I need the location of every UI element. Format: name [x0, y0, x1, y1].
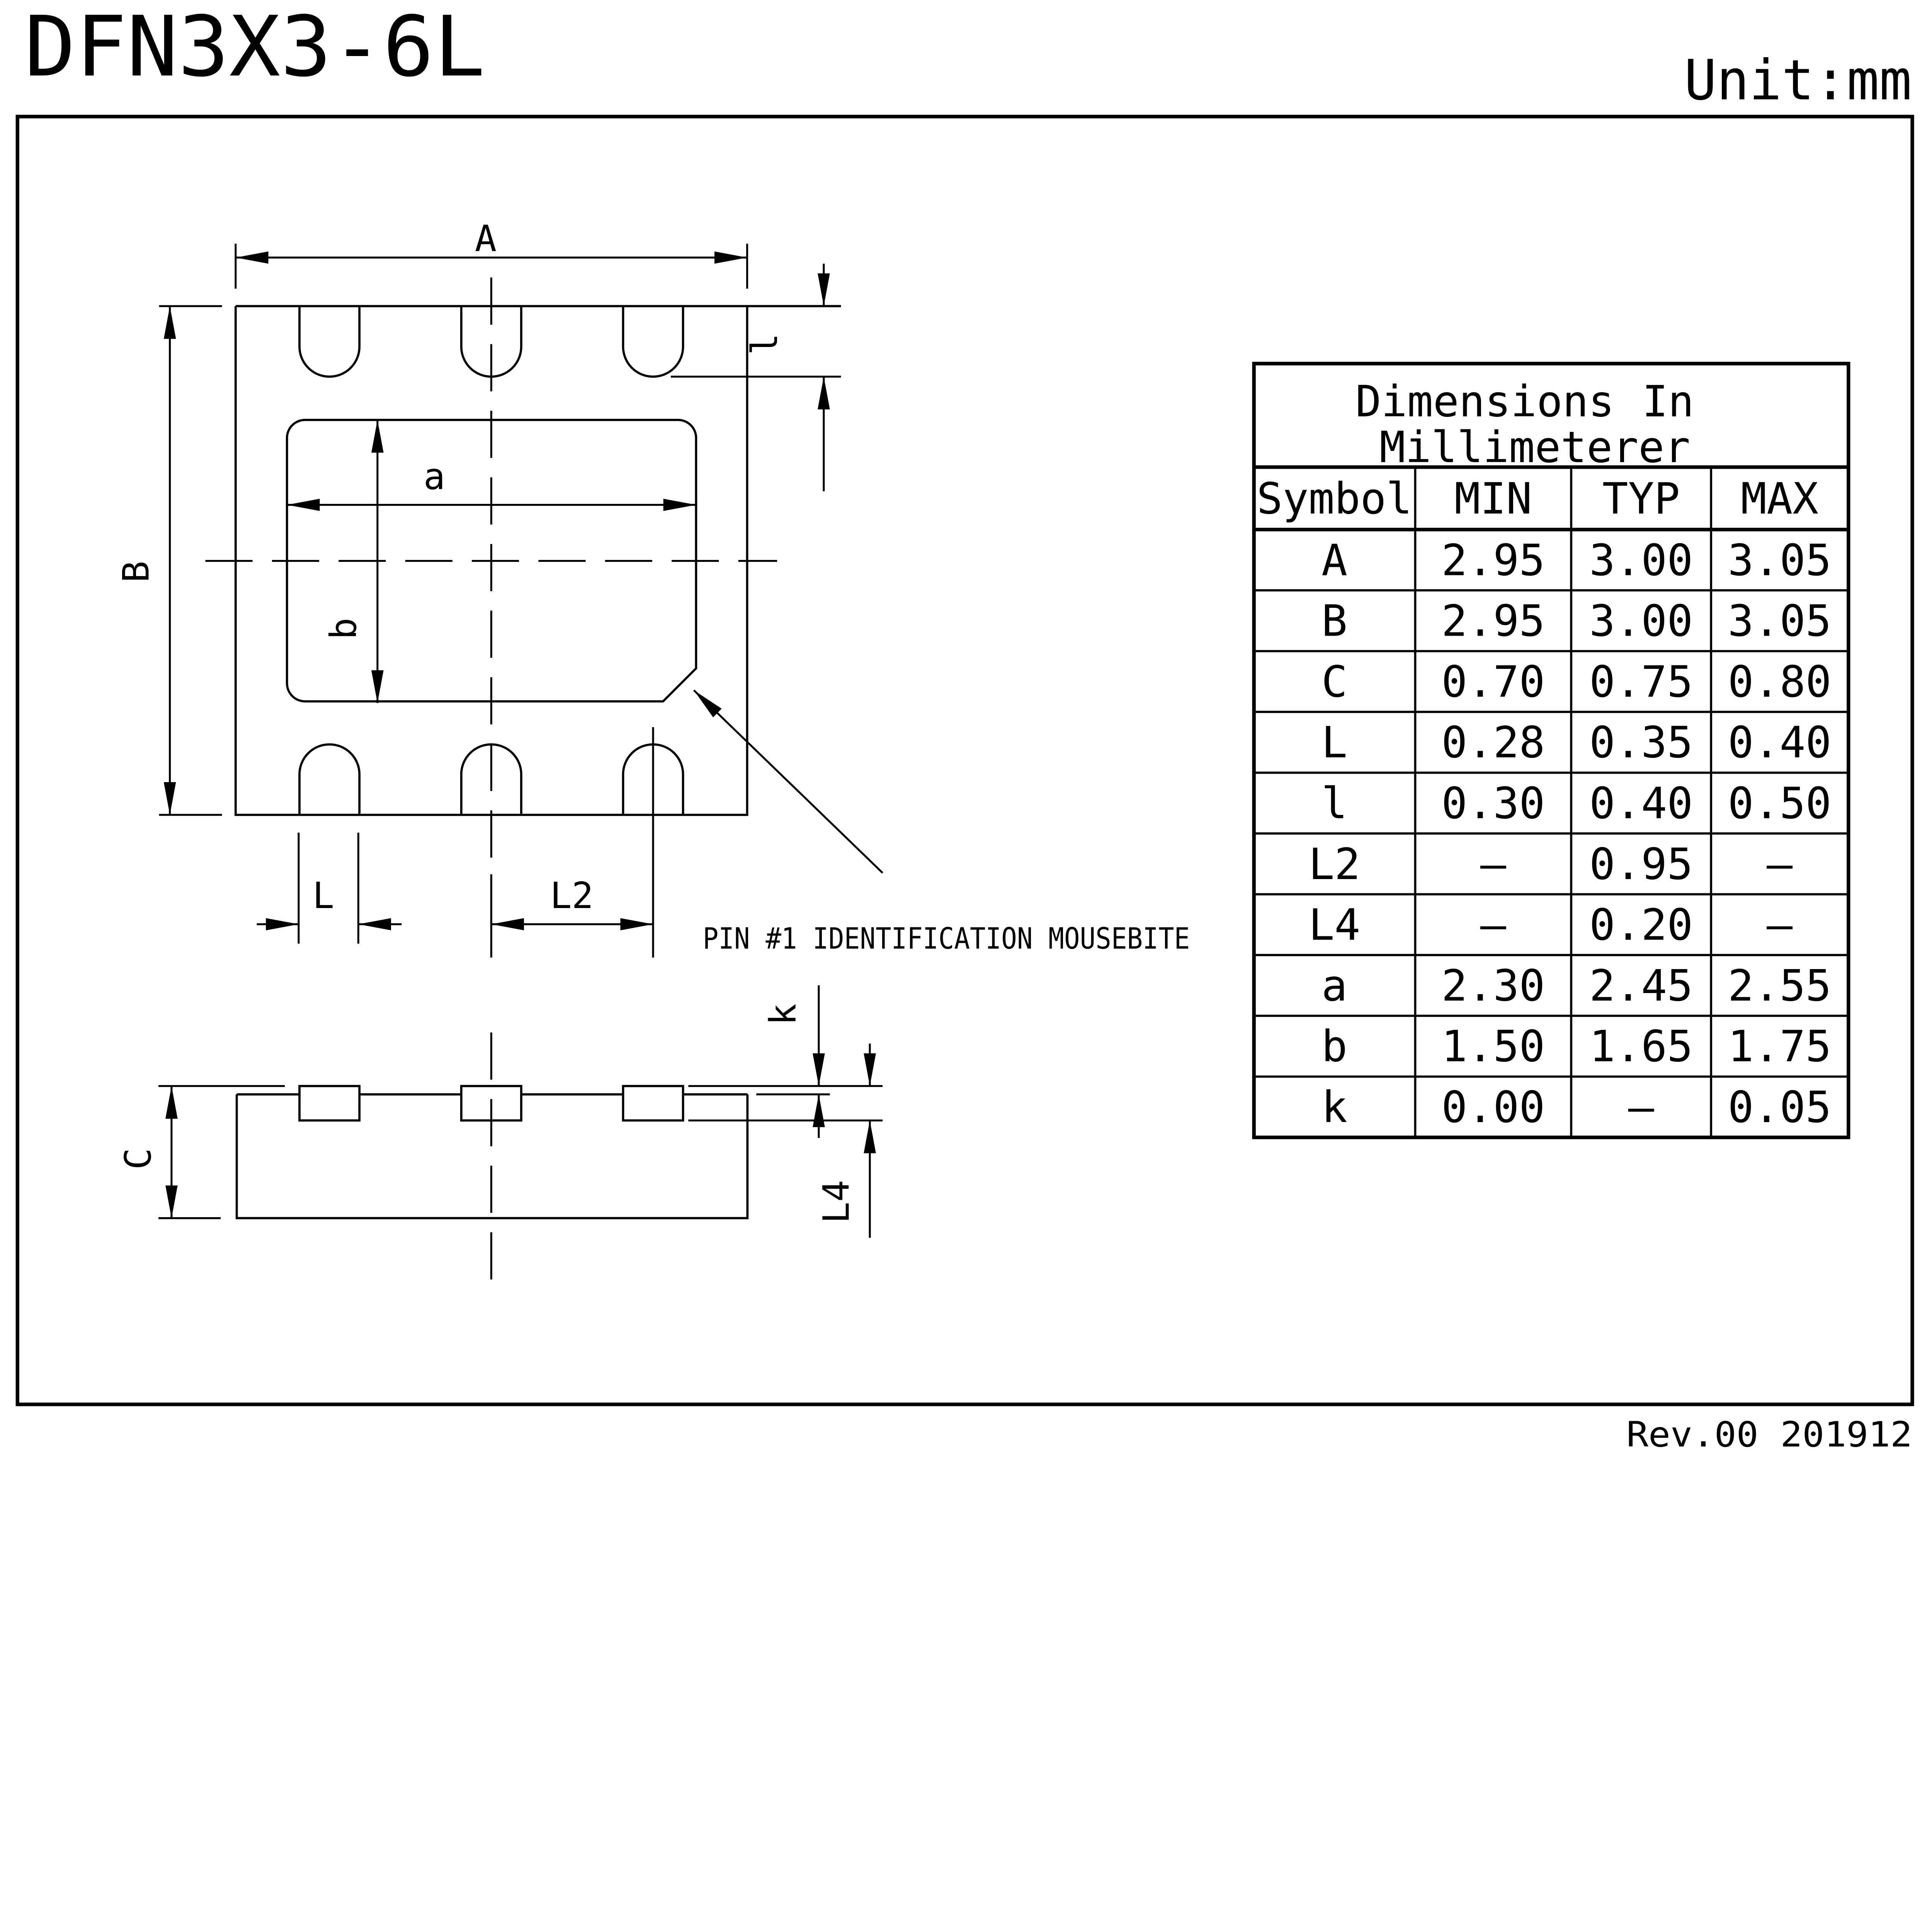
table-cell: l — [1321, 779, 1347, 829]
table-cell: 2.55 — [1728, 961, 1832, 1011]
dim-label-L: L — [313, 875, 334, 917]
table-cell: 0.05 — [1728, 1083, 1832, 1133]
table-cell: 0.80 — [1728, 657, 1832, 707]
table-cell: 1.75 — [1728, 1022, 1832, 1072]
dim-L4: L4 — [688, 1044, 883, 1238]
unit-label: Unit:mm — [1684, 48, 1912, 112]
dim-label-k: k — [762, 1003, 804, 1025]
table-cell: 3.00 — [1589, 536, 1693, 585]
table-cell: 0.35 — [1589, 718, 1693, 768]
table-cell: – — [1767, 900, 1793, 950]
table-cell: 1.65 — [1589, 1022, 1693, 1072]
pin1-note: PIN #1 IDENTIFICATION MOUSEBITE — [703, 922, 1190, 956]
table-cell: 0.28 — [1441, 718, 1545, 768]
table-cell: – — [1628, 1083, 1655, 1133]
table-cell: 1.50 — [1441, 1022, 1545, 1072]
dim-label-b: b — [323, 618, 365, 639]
dim-label-L4: L4 — [816, 1180, 858, 1223]
table-cell: 2.30 — [1441, 961, 1545, 1011]
pad-bottom-1 — [299, 744, 359, 815]
table-cell: b — [1321, 1022, 1347, 1072]
table-cell: L4 — [1308, 900, 1360, 950]
col-header-symbol: Symbol — [1257, 474, 1412, 524]
top-view: A B a b l — [115, 218, 1190, 957]
table-cell: 0.70 — [1441, 657, 1545, 707]
dim-L: L — [257, 833, 401, 944]
revision-label: Rev.00 201912 — [1626, 1415, 1912, 1455]
pin1-callout: PIN #1 IDENTIFICATION MOUSEBITE — [694, 690, 1190, 956]
table-cell: 3.00 — [1589, 597, 1693, 646]
table-cell: 3.05 — [1728, 536, 1832, 585]
table-row: B 2.95 3.00 3.05 — [1321, 597, 1832, 646]
dim-label-l: l — [744, 333, 786, 355]
col-header-min: MIN — [1454, 474, 1532, 524]
side-pad-3 — [623, 1086, 683, 1121]
dim-label-L2: L2 — [550, 875, 593, 917]
table-title-line2: Millimeterer — [1379, 423, 1690, 473]
table-cell: – — [1480, 840, 1507, 889]
table-cell: – — [1767, 840, 1793, 889]
table-cell: 0.95 — [1589, 840, 1693, 889]
table-cell: 0.30 — [1441, 779, 1545, 829]
dim-k: k — [688, 985, 883, 1138]
table-title-word1: Dimensions — [1355, 377, 1614, 427]
table-cell: 2.45 — [1589, 961, 1693, 1011]
package-drawing: DFN3X3-6L Unit:mm Rev.00 201912 A — [0, 0, 1932, 1455]
dim-label-A: A — [475, 218, 497, 260]
dimension-table: Dimensions In Millimeterer Symbol MIN TY… — [1254, 364, 1849, 1138]
table-row: b 1.50 1.65 1.75 — [1321, 1022, 1832, 1072]
table-cell: C — [1321, 657, 1347, 707]
table-title-word2: In — [1642, 377, 1694, 427]
table-row: l 0.30 0.40 0.50 — [1321, 779, 1832, 829]
dim-L2: L2 — [491, 727, 653, 957]
pad-top-3 — [623, 306, 683, 376]
side-view: C k L4 — [117, 985, 883, 1279]
table-cell: 3.05 — [1728, 597, 1832, 646]
table-row: A 2.95 3.00 3.05 — [1321, 536, 1832, 585]
pin1-leader-line — [694, 690, 883, 873]
page-title: DFN3X3-6L — [24, 0, 485, 95]
table-cell: L2 — [1308, 840, 1360, 889]
table-cell: 0.40 — [1589, 779, 1693, 829]
table-cell: 2.95 — [1441, 536, 1545, 585]
table-cell: 0.75 — [1589, 657, 1693, 707]
table-row: C 0.70 0.75 0.80 — [1321, 657, 1832, 707]
dim-label-a: a — [423, 456, 445, 498]
table-row: L2 – 0.95 – — [1308, 840, 1793, 889]
table-cell: 0.20 — [1589, 900, 1693, 950]
table-cell: A — [1321, 536, 1347, 585]
side-pad-1 — [299, 1086, 359, 1121]
dim-C: C — [117, 1086, 285, 1218]
table-cell: a — [1321, 961, 1347, 1011]
col-header-typ: TYP — [1602, 474, 1680, 524]
table-cell: L — [1321, 718, 1347, 768]
col-header-max: MAX — [1741, 474, 1818, 524]
datasheet-page: DFN3X3-6L Unit:mm Rev.00 201912 A — [0, 0, 1932, 1455]
table-cell: – — [1480, 900, 1507, 950]
table-cell: 0.50 — [1728, 779, 1832, 829]
dim-label-C: C — [117, 1148, 159, 1170]
table-row: a 2.30 2.45 2.55 — [1321, 961, 1832, 1011]
pad-top-1 — [299, 306, 359, 376]
table-cell: 0.40 — [1728, 718, 1832, 768]
table-row: L 0.28 0.35 0.40 — [1321, 718, 1832, 768]
table-row: L4 – 0.20 – — [1308, 900, 1793, 950]
table-cell: B — [1321, 597, 1347, 646]
table-cell: k — [1321, 1083, 1347, 1133]
dim-label-B: B — [115, 561, 157, 583]
table-row: k 0.00 – 0.05 — [1321, 1083, 1832, 1133]
table-cell: 2.95 — [1441, 597, 1545, 646]
table-cell: 0.00 — [1441, 1083, 1545, 1133]
